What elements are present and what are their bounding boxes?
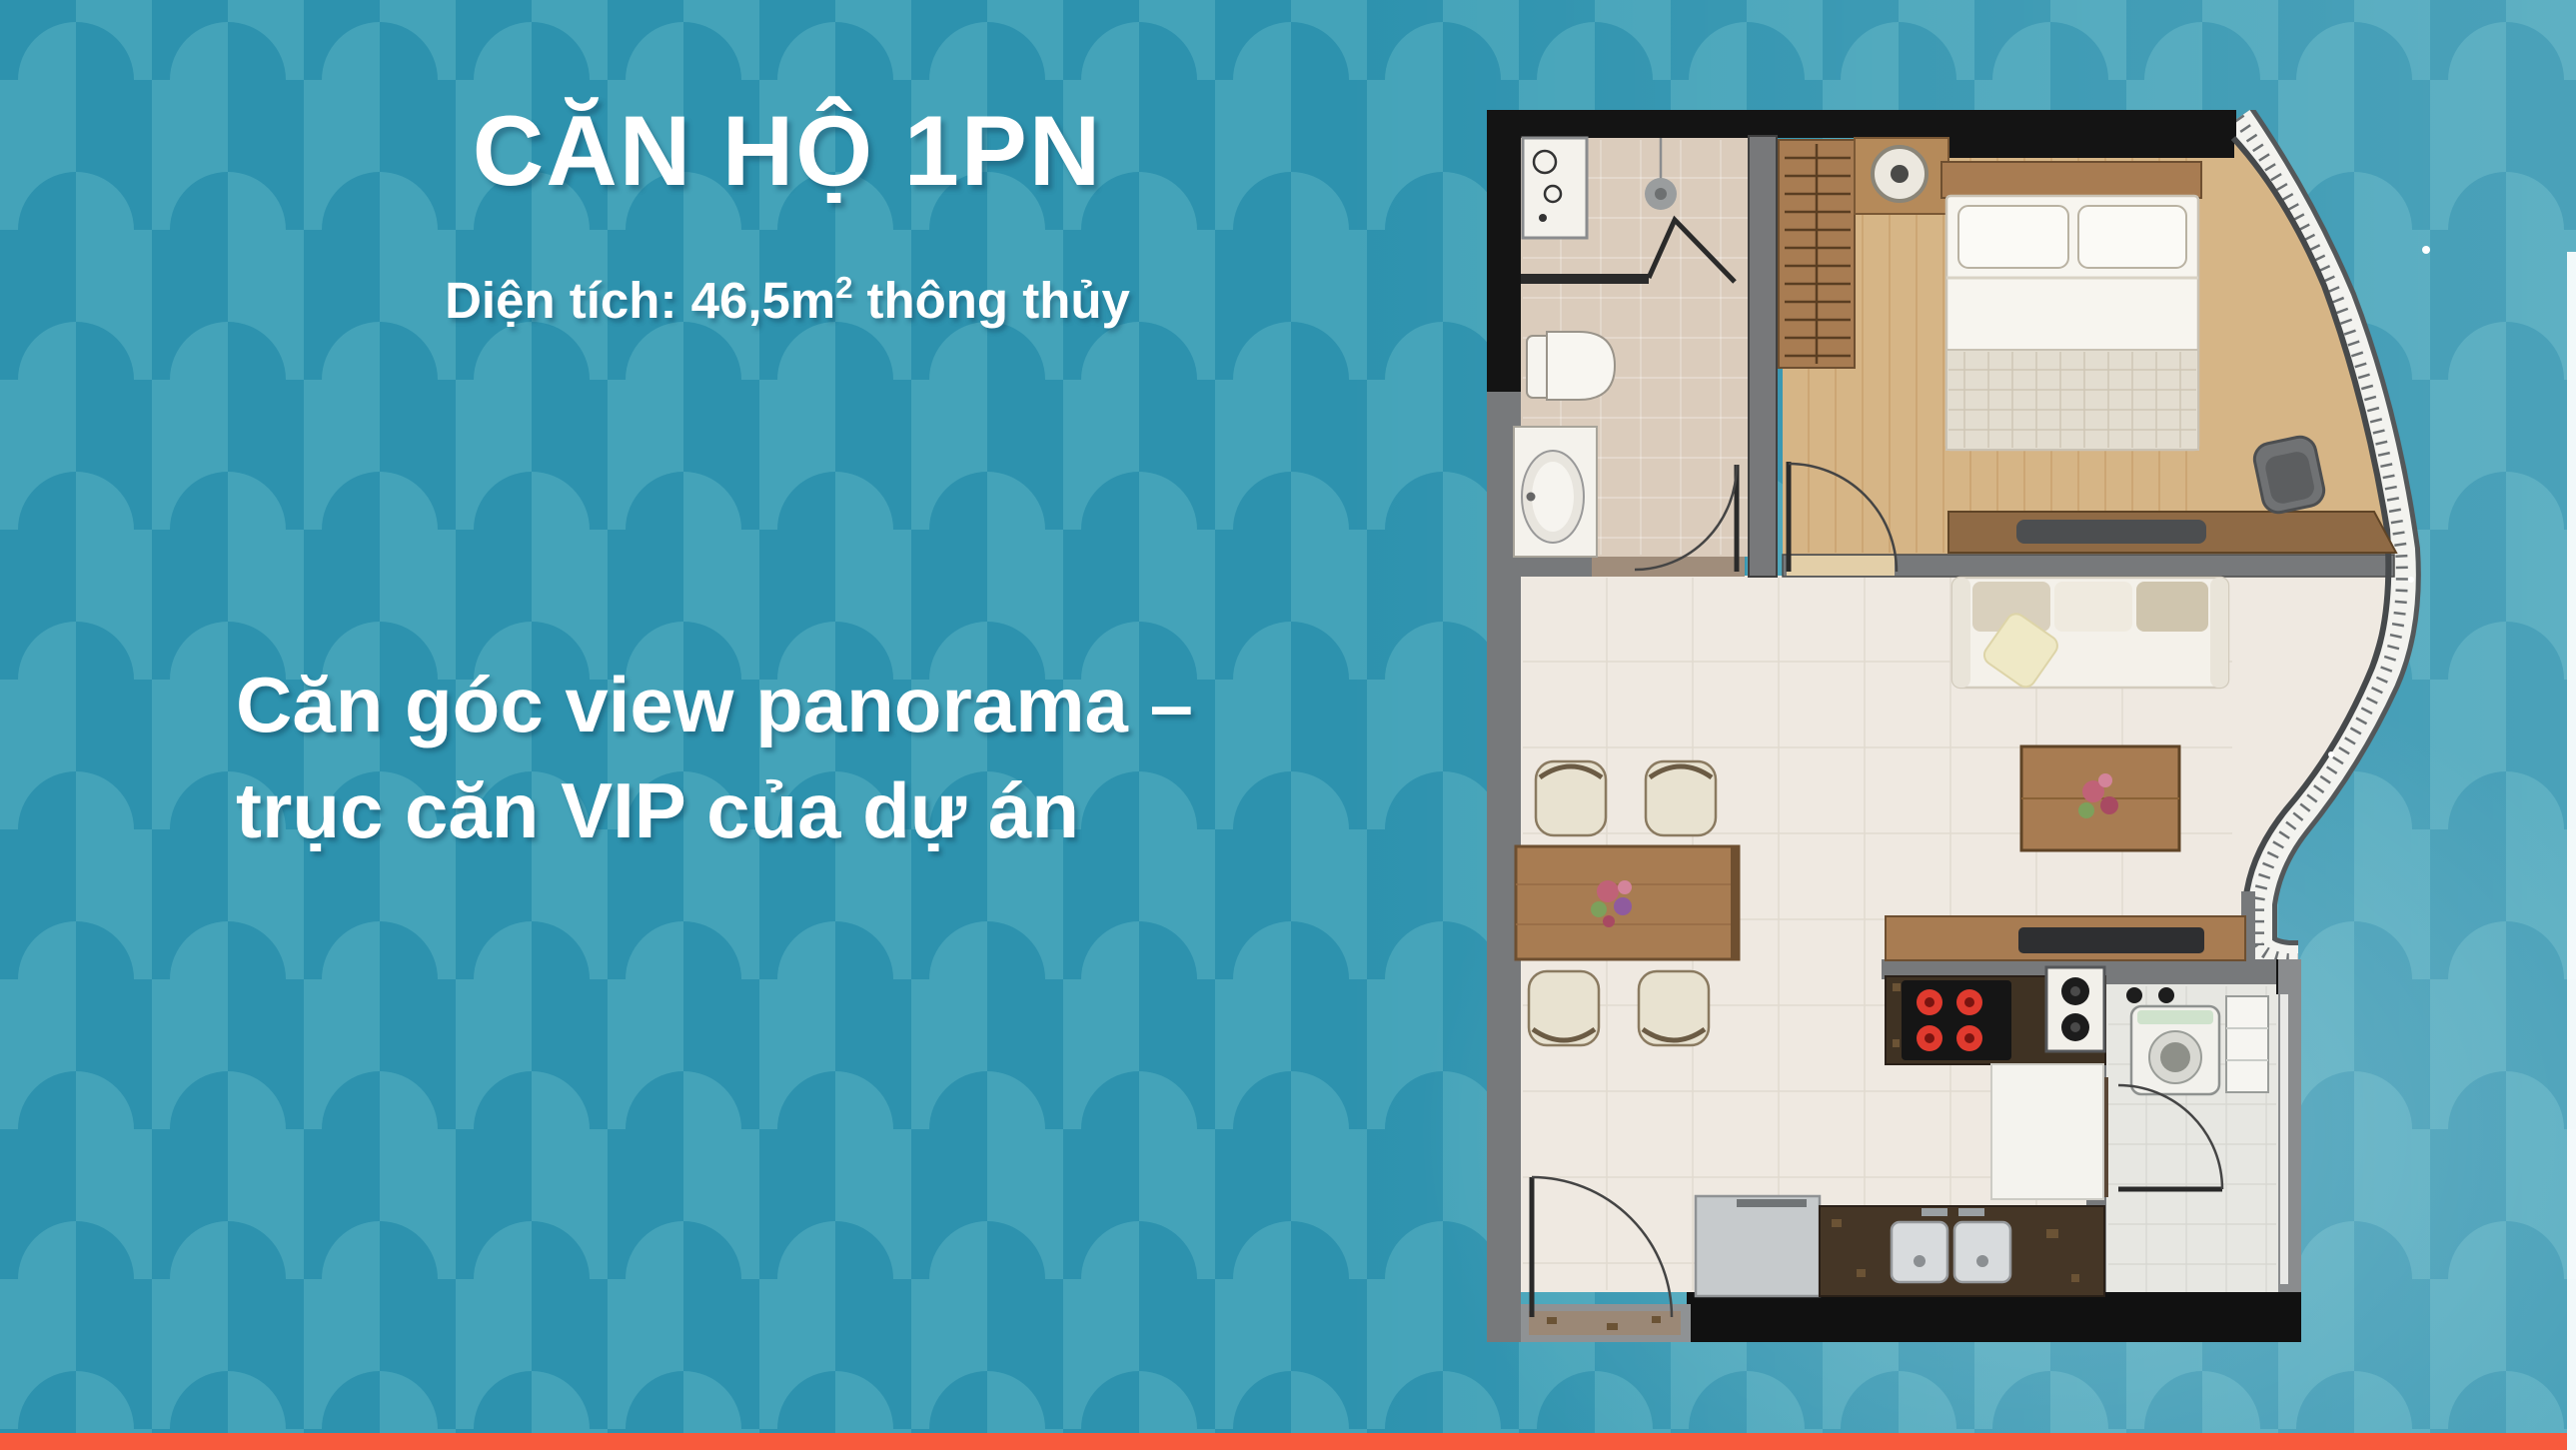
shower-partition: [1521, 274, 1649, 284]
toilet-bowl: [1547, 332, 1615, 400]
desk-chair: [2251, 434, 2326, 515]
sink-basin-inner: [1532, 462, 1574, 532]
sparkle: [2408, 577, 2414, 583]
flower: [1618, 880, 1632, 894]
bathroom-bottom-wall: [1521, 557, 1592, 577]
dining-chair: [1529, 971, 1599, 1045]
refrigerator-handle: [1737, 1199, 1807, 1207]
left-wall-upper: [1487, 110, 1521, 392]
apartment-title: CĂN HỘ 1PN: [88, 94, 1487, 208]
sink-drain: [1976, 1255, 1988, 1267]
pillow-left: [1958, 206, 2068, 268]
flower: [1597, 880, 1619, 902]
tagline-line-2: trục căn VIP của dự án: [236, 757, 1535, 863]
sofa-armrest-right: [2210, 578, 2228, 688]
slide: CĂN HỘ 1PN Diện tích: 46,5m2thông thủy C…: [0, 0, 2576, 1450]
refrigerator: [1696, 1196, 1820, 1296]
dining-chair: [1646, 761, 1716, 835]
pillow-right: [2078, 206, 2186, 268]
washer-drum-inner: [2160, 1042, 2190, 1072]
desk-tray: [2016, 520, 2206, 544]
sofa-armrest-left: [1952, 578, 1970, 688]
bathroom-fixture-box: [1523, 138, 1587, 238]
utility-top-wall: [2086, 959, 2301, 984]
tagline-line-1: Căn góc view panorama –: [236, 652, 1535, 757]
sparkle: [2328, 751, 2334, 757]
area-subtitle: Diện tích: 46,5m2thông thủy: [88, 270, 1487, 330]
area-superscript: 2: [835, 270, 852, 305]
headline-block: CĂN HỘ 1PN: [88, 94, 1487, 208]
kitchen-faucet: [1922, 1208, 1947, 1216]
top-wall-thick: [1927, 110, 2234, 158]
plaid-blanket: [1946, 350, 2198, 450]
floor-plan: [1487, 110, 2466, 1349]
flower-leaf: [1591, 901, 1607, 917]
kitchen-faucet: [1958, 1208, 1984, 1216]
bottom-wall: [1687, 1292, 2301, 1342]
orange-accent-bar: [0, 1433, 2567, 1450]
area-suffix-text: thông thủy: [852, 272, 1129, 329]
bathroom-bedroom-wall: [1749, 136, 1777, 577]
bathroom-threshold: [1592, 557, 1745, 577]
sofa-cushion: [2136, 582, 2208, 632]
tagline: Căn góc view panorama – trục căn VIP của…: [236, 652, 1535, 863]
dining-chair: [1639, 971, 1709, 1045]
utility-shelf: [2226, 996, 2268, 1092]
utility-right-wall-face: [2280, 994, 2288, 1284]
flower: [2098, 773, 2112, 787]
sparkle: [2422, 246, 2430, 254]
dining-chair: [1536, 761, 1606, 835]
tap-icon: [2158, 987, 2174, 1003]
flower: [2100, 796, 2118, 814]
round-mirror-center: [1891, 165, 1909, 183]
sofa-cushion: [2054, 582, 2132, 632]
right-edge-strip: [2567, 252, 2576, 1450]
kitchen-cabinet: [1991, 1064, 2103, 1199]
headboard: [1941, 162, 2201, 198]
flower-leaf: [2078, 802, 2094, 818]
tv: [2018, 927, 2204, 953]
dining-table-edge: [1731, 846, 1739, 959]
washing-machine-panel: [2137, 1010, 2213, 1024]
tap-icon: [2126, 987, 2142, 1003]
sink-bowl-right: [1954, 1222, 2010, 1282]
bedroom-door-opening: [1787, 556, 1895, 576]
shower-drain: [1655, 188, 1667, 200]
flower: [1614, 897, 1632, 915]
fixture-icon: [1539, 214, 1547, 222]
sink-faucet: [1527, 493, 1536, 502]
flower: [1603, 915, 1615, 927]
sink-bowl-left: [1892, 1222, 1947, 1282]
sink-drain: [1914, 1255, 1926, 1267]
induction-cooktop: [1902, 980, 2011, 1060]
area-text: Diện tích: 46,5m: [445, 272, 835, 329]
